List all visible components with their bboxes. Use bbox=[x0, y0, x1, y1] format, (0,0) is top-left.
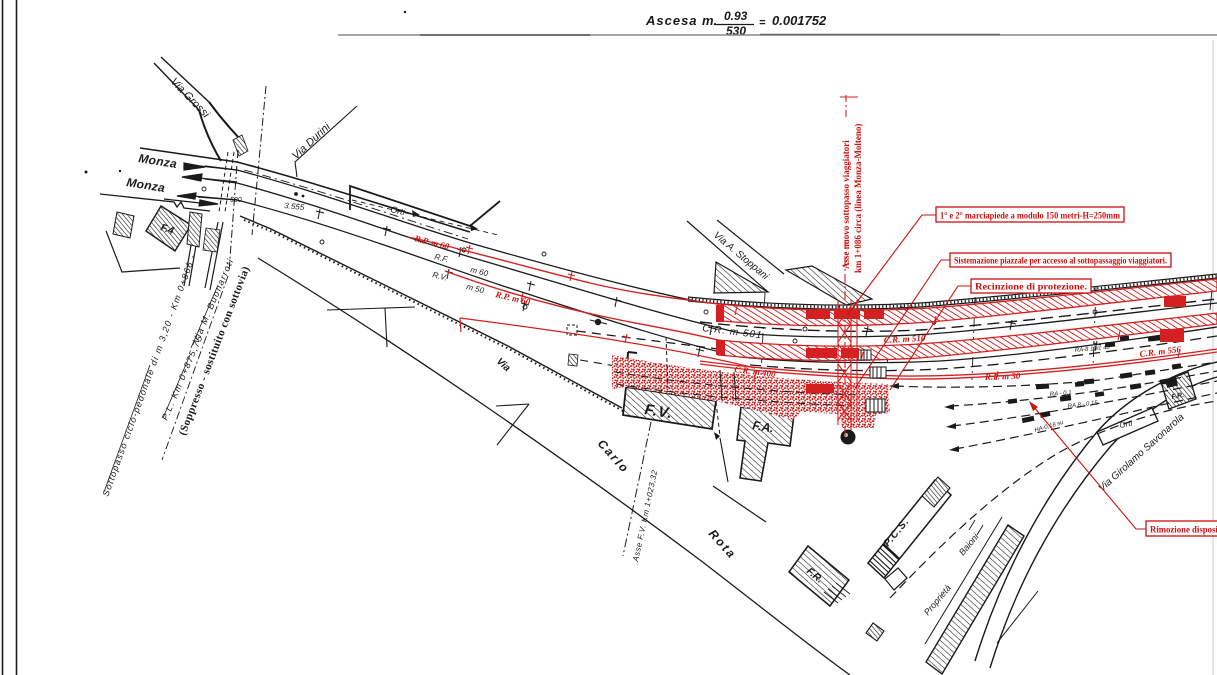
svg-text:Sistemazione piazzale per acce: Sistemazione piazzale per accesso al sot… bbox=[954, 256, 1167, 266]
svg-text:580: 580 bbox=[230, 197, 242, 204]
svg-text:Rimozione dispositivi: Rimozione dispositivi bbox=[1150, 525, 1217, 535]
svg-text:Ascesa: Ascesa bbox=[645, 13, 698, 28]
svg-text:=: = bbox=[759, 17, 766, 29]
svg-text:530: 530 bbox=[726, 24, 746, 38]
svg-text:1° e 2° marciapiede a modulo 1: 1° e 2° marciapiede a modulo 150 metri-H… bbox=[940, 211, 1120, 221]
svg-text:Recinzione di protezione.: Recinzione di protezione. bbox=[975, 282, 1087, 292]
svg-text:Asse nuovo sottopasso viaggia: Asse nuovo sottopasso viaggiatori bbox=[841, 140, 851, 269]
svg-text:m.: m. bbox=[702, 13, 717, 28]
svg-text:0.001752: 0.001752 bbox=[772, 13, 827, 28]
svg-text:km 1+086 circa (linea Monza-Mo: km 1+086 circa (linea Monza-Molteno) bbox=[853, 124, 863, 273]
svg-text:0.93: 0.93 bbox=[724, 9, 748, 23]
